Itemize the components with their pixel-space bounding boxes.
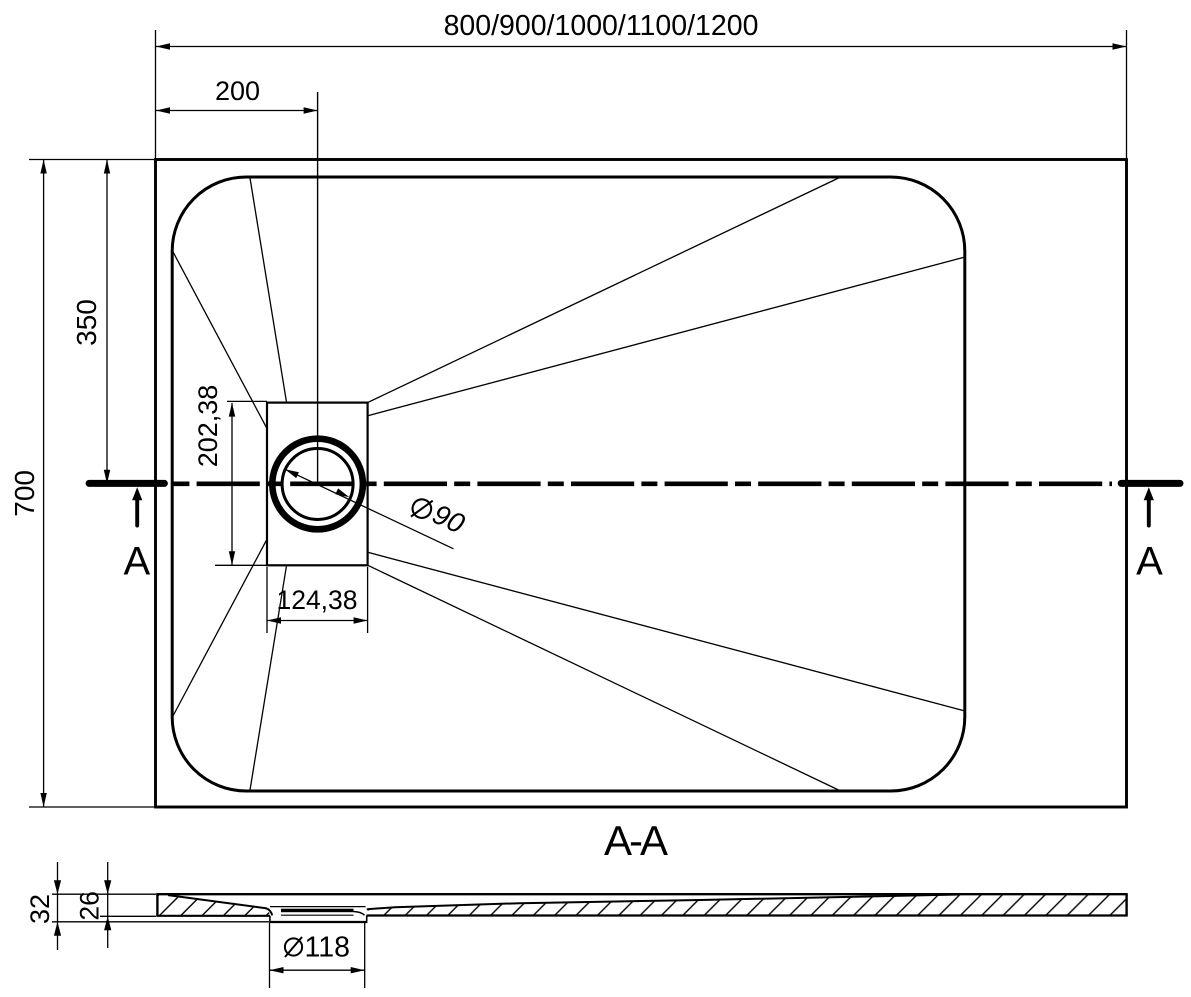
svg-text:A-A: A-A bbox=[604, 817, 668, 864]
svg-text:A: A bbox=[1136, 540, 1163, 584]
svg-text:202,38: 202,38 bbox=[193, 385, 223, 468]
svg-text:200: 200 bbox=[215, 76, 260, 106]
svg-text:118: 118 bbox=[305, 932, 350, 964]
svg-text:90: 90 bbox=[428, 498, 470, 539]
svg-text:A: A bbox=[123, 540, 150, 584]
svg-text:32: 32 bbox=[25, 894, 55, 924]
svg-text:700: 700 bbox=[9, 470, 40, 517]
svg-text:800/900/1000/1100/1200: 800/900/1000/1100/1200 bbox=[444, 10, 759, 42]
svg-text:26: 26 bbox=[75, 891, 105, 920]
svg-text:124,38: 124,38 bbox=[276, 585, 357, 615]
svg-text:350: 350 bbox=[71, 299, 102, 346]
